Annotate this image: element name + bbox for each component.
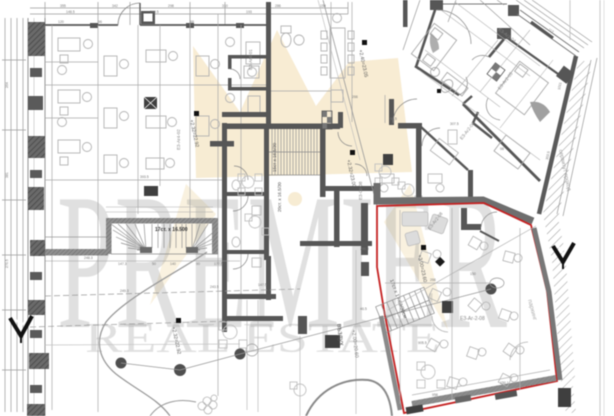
svg-text:905.5: 905.5: [418, 341, 427, 345]
svg-text:748.3: 748.3: [360, 247, 369, 251]
svg-text:98: 98: [500, 147, 504, 151]
svg-text:88: 88: [190, 20, 194, 24]
svg-text:248.3: 248.3: [84, 256, 93, 260]
svg-text:266: 266: [430, 278, 436, 282]
svg-text:243.5: 243.5: [210, 285, 219, 289]
svg-text:ЕЗ-Сг-08: ЕЗ-Сг-08: [358, 181, 363, 200]
svg-text:154: 154: [320, 4, 326, 8]
svg-text:ЕЗ-Аг4-02: ЕЗ-Аг4-02: [176, 129, 181, 150]
svg-text:286: 286: [275, 4, 281, 8]
svg-text:298: 298: [168, 4, 174, 8]
svg-text:342: 342: [112, 4, 118, 8]
svg-text:96: 96: [98, 20, 102, 24]
svg-text:150: 150: [470, 272, 476, 276]
svg-text:150.1: 150.1: [500, 381, 509, 385]
svg-text:355: 355: [60, 4, 66, 8]
svg-text:310: 310: [222, 4, 228, 8]
svg-text:177.5: 177.5: [214, 262, 223, 266]
svg-text:20ст. x 16.5/30: 20ст. x 16.5/30: [277, 182, 282, 212]
svg-text:381: 381: [5, 172, 9, 178]
svg-text:46.5: 46.5: [360, 307, 367, 311]
svg-text:266: 266: [352, 95, 358, 99]
svg-text:140: 140: [170, 262, 176, 266]
svg-text:148.5: 148.5: [66, 10, 75, 14]
svg-text:249.3: 249.3: [120, 289, 129, 293]
svg-text:147.5: 147.5: [258, 283, 267, 287]
svg-text:147.3: 147.3: [118, 262, 127, 266]
svg-text:90: 90: [196, 262, 200, 266]
svg-text:264: 264: [5, 82, 9, 88]
svg-text:393.5: 393.5: [140, 175, 149, 179]
svg-text:260.5: 260.5: [150, 10, 159, 14]
svg-text:ЕЗ-Аг-2-08: ЕЗ-Аг-2-08: [460, 316, 485, 322]
svg-text:ЕЗ-Аг4-01: ЕЗ-Аг4-01: [248, 49, 253, 70]
svg-text:193: 193: [246, 10, 252, 14]
svg-text:270.5: 270.5: [5, 259, 9, 268]
svg-text:17ст. x 16.500: 17ст. x 16.500: [155, 227, 188, 233]
svg-text:307.5: 307.5: [450, 122, 459, 126]
svg-text:120: 120: [58, 20, 64, 24]
svg-text:15ст x 16.5/30: 15ст x 16.5/30: [272, 142, 277, 172]
svg-text:98.5: 98.5: [390, 117, 397, 121]
svg-text:50: 50: [152, 262, 156, 266]
svg-text:958: 958: [432, 393, 438, 397]
